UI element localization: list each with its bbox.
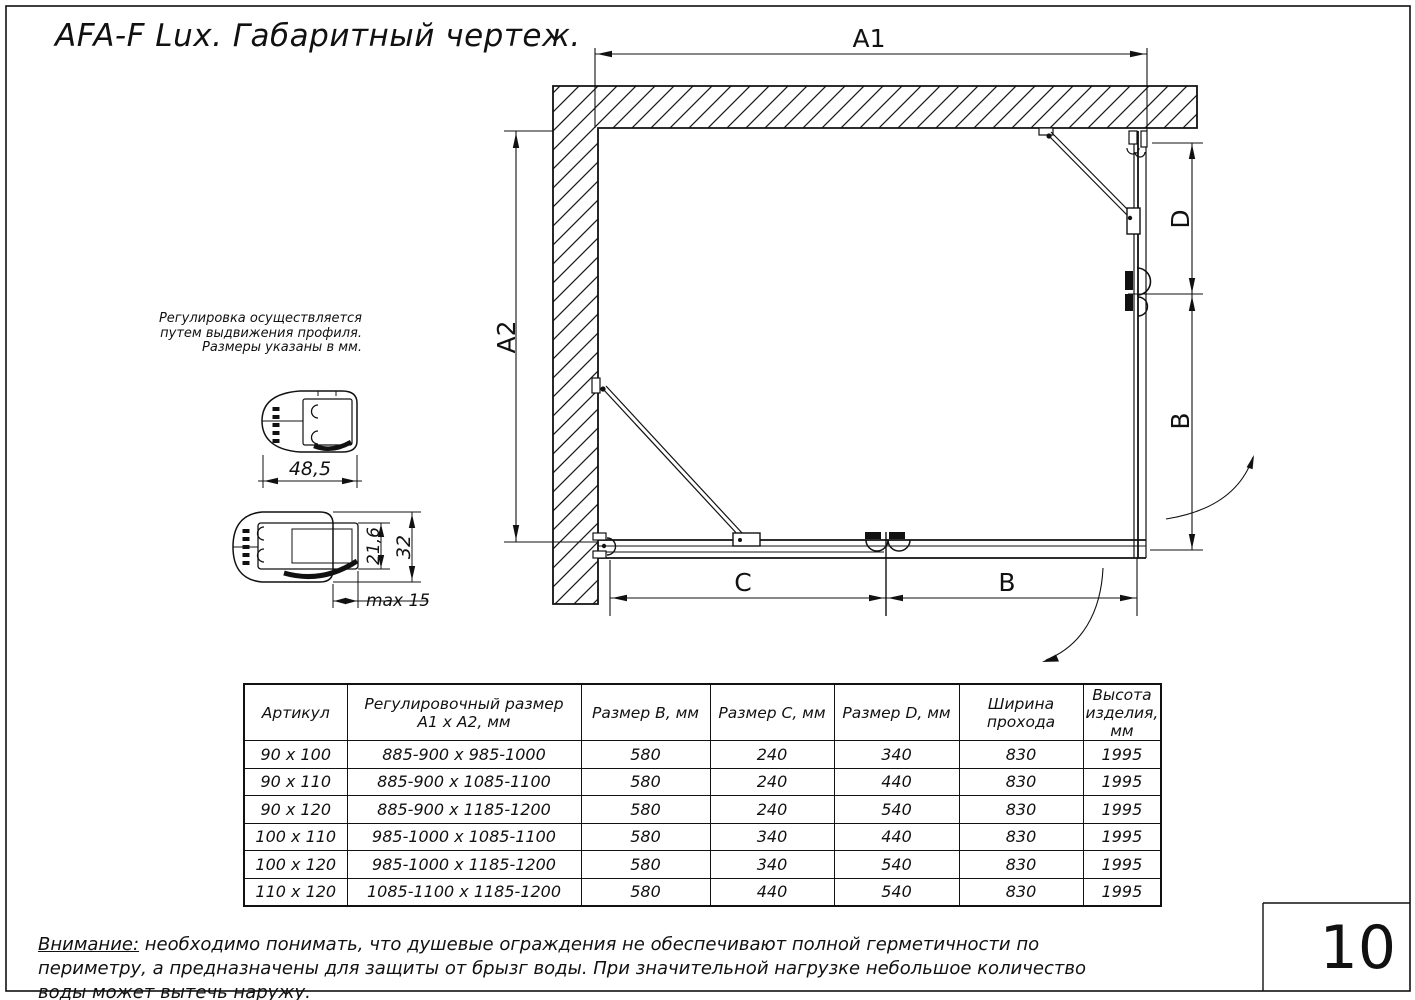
dim-label-max-15: max 15 xyxy=(366,591,430,611)
cell-size-c: 340 xyxy=(710,851,834,879)
col-header-size-c: Размер С, мм xyxy=(710,684,834,741)
cell-size-c: 240 xyxy=(710,796,834,824)
cell-adjust-size: 985-1000 x 1085-1100 xyxy=(347,823,581,851)
table-row: 110 x 120 1085-1100 x 1185-1200 580 440 … xyxy=(244,878,1161,906)
table-header-row: Артикул Регулировочный размер А1 x А2, м… xyxy=(244,684,1161,741)
dim-label-21-6: 21,6 xyxy=(364,527,384,565)
cell-adjust-size: 985-1000 x 1185-1200 xyxy=(347,851,581,879)
support-brace-left xyxy=(592,378,760,546)
cell-size-b: 580 xyxy=(581,796,710,824)
door-handle xyxy=(865,532,910,616)
col-header-article: Артикул xyxy=(244,684,347,741)
dim-label-b-right: B xyxy=(1166,412,1195,429)
cell-pass-width: 830 xyxy=(959,851,1083,879)
cell-size-b: 580 xyxy=(581,741,710,769)
table-row: 100 x 110 985-1000 x 1085-1100 580 340 4… xyxy=(244,823,1161,851)
cell-pass-width: 830 xyxy=(959,768,1083,796)
cell-adjust-size: 885-900 x 985-1000 xyxy=(347,741,581,769)
door-swing-arc-bottom xyxy=(1042,568,1103,662)
cell-article: 90 x 100 xyxy=(244,741,347,769)
cell-height: 1995 xyxy=(1083,741,1161,769)
dim-label-32: 32 xyxy=(393,535,415,559)
cell-article: 100 x 110 xyxy=(244,823,347,851)
col-header-height: Высота изделия, мм xyxy=(1083,684,1161,741)
support-brace-right xyxy=(1039,128,1140,234)
cell-size-b: 580 xyxy=(581,768,710,796)
cell-size-c: 440 xyxy=(710,878,834,906)
cell-size-d: 340 xyxy=(834,741,959,769)
adjustment-note: Регулировка осуществляется путем выдвиже… xyxy=(148,312,362,356)
cell-pass-width: 830 xyxy=(959,741,1083,769)
adjustment-note-line3: Размеры указаны в мм. xyxy=(148,341,362,356)
col-header-size-b: Размер В, мм xyxy=(581,684,710,741)
cell-size-b: 580 xyxy=(581,851,710,879)
dim-label-a1: A1 xyxy=(852,24,885,53)
cell-height: 1995 xyxy=(1083,851,1161,879)
cell-article: 90 x 110 xyxy=(244,768,347,796)
cell-article: 100 x 120 xyxy=(244,851,347,879)
cell-size-d: 540 xyxy=(834,796,959,824)
cell-article: 110 x 120 xyxy=(244,878,347,906)
table-row: 100 x 120 985-1000 x 1185-1200 580 340 5… xyxy=(244,851,1161,879)
dim-label-c: C xyxy=(734,568,751,597)
cell-height: 1995 xyxy=(1083,823,1161,851)
cell-pass-width: 830 xyxy=(959,796,1083,824)
col-header-adjust-size: Регулировочный размер А1 x А2, мм xyxy=(347,684,581,741)
warning-label: Внимание: xyxy=(38,934,139,955)
warning-note: Внимание: необходимо понимать, что душев… xyxy=(38,933,1133,1000)
cell-size-c: 240 xyxy=(710,741,834,769)
cell-size-c: 340 xyxy=(710,823,834,851)
side-glass-panel xyxy=(1127,131,1147,558)
cell-adjust-size: 1085-1100 x 1185-1200 xyxy=(347,878,581,906)
profile-cross-section-1: 48,5 xyxy=(258,391,362,488)
door-swing-arc-right xyxy=(1166,455,1254,519)
cell-pass-width: 830 xyxy=(959,823,1083,851)
profile-cross-section-2: 21,6 32 max 15 xyxy=(233,512,430,611)
cell-size-c: 240 xyxy=(710,768,834,796)
cell-height: 1995 xyxy=(1083,768,1161,796)
adjustment-note-line1: Регулировка осуществляется xyxy=(148,312,362,327)
cell-adjust-size: 885-900 x 1185-1200 xyxy=(347,796,581,824)
wall-hatched xyxy=(553,86,1197,604)
dim-label-d: D xyxy=(1166,209,1195,228)
page-number: 10 xyxy=(1280,916,1396,980)
cell-adjust-size: 885-900 x 1085-1100 xyxy=(347,768,581,796)
adjustment-note-line2: путем выдвижения профиля. xyxy=(148,327,362,342)
cell-pass-width: 830 xyxy=(959,878,1083,906)
dim-label-b-bottom: B xyxy=(998,568,1015,597)
cell-article: 90 x 120 xyxy=(244,796,347,824)
cell-height: 1995 xyxy=(1083,878,1161,906)
cell-height: 1995 xyxy=(1083,796,1161,824)
dim-label-a2: A2 xyxy=(492,320,521,353)
size-spec-table: Артикул Регулировочный размер А1 x А2, м… xyxy=(243,683,1162,907)
cell-size-d: 540 xyxy=(834,878,959,906)
col-header-size-d: Размер D, мм xyxy=(834,684,959,741)
cell-size-d: 540 xyxy=(834,851,959,879)
page-title: AFA-F Lux. Габаритный чертеж. xyxy=(55,18,581,54)
col-header-pass-width: Ширина прохода xyxy=(959,684,1083,741)
cell-size-d: 440 xyxy=(834,823,959,851)
table-row: 90 x 110 885-900 x 1085-1100 580 240 440… xyxy=(244,768,1161,796)
table-row: 90 x 120 885-900 x 1185-1200 580 240 540… xyxy=(244,796,1161,824)
cell-size-b: 580 xyxy=(581,878,710,906)
drawing-sheet: A1 A2 xyxy=(0,0,1415,1000)
dim-label-48-5: 48,5 xyxy=(289,458,331,480)
warning-text: необходимо понимать, что душевые огражде… xyxy=(38,934,1086,1000)
dimension-c-b-bottom: C B xyxy=(610,558,1137,616)
cell-size-d: 440 xyxy=(834,768,959,796)
dimension-d-b-right: D B xyxy=(1128,143,1203,550)
table-row: 90 x 100 885-900 x 985-1000 580 240 340 … xyxy=(244,741,1161,769)
cell-size-b: 580 xyxy=(581,823,710,851)
